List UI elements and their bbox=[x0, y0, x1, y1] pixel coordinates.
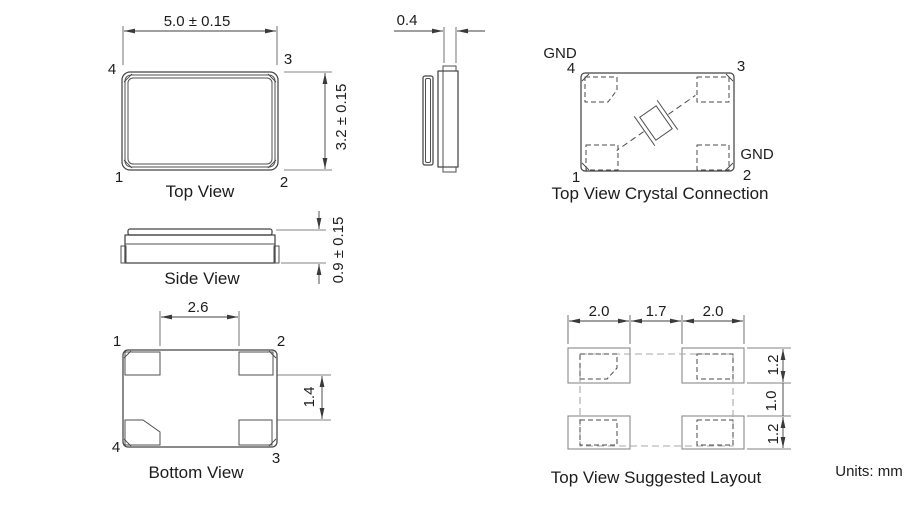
side-view-lid bbox=[128, 229, 272, 235]
suggested-layout-view: 2.0 1.7 2.0 1.2 1.0 1.2 Top View Suggest… bbox=[551, 303, 791, 487]
land-pad-top-left bbox=[568, 348, 630, 383]
bottom-view-pin1-label: 1 bbox=[113, 333, 121, 350]
crystal-plate bbox=[634, 116, 655, 145]
bottom-pad4-chamfered bbox=[125, 420, 160, 445]
side-view-caption: Side View bbox=[164, 269, 240, 288]
end-view-top-pad bbox=[443, 66, 456, 71]
layout-vertical-dimensions: 1.2 1.0 1.2 bbox=[747, 348, 791, 449]
crystal-connection-package-outline bbox=[581, 73, 734, 171]
datasheet-mechanical-drawing: 5.0 ± 0.15 3.2 ± 0.15 4 3 1 2 Top View bbox=[0, 0, 908, 528]
end-view-bottom-pad bbox=[443, 167, 456, 172]
top-view-width-dimension: 5.0 ± 0.15 bbox=[123, 13, 277, 65]
layout-horizontal-dimensions: 2.0 1.7 2.0 bbox=[568, 303, 744, 344]
layout-pad2-dashed bbox=[697, 420, 733, 445]
land-pad-bottom-right bbox=[682, 416, 744, 449]
crystal-pin4-label: 4 bbox=[567, 60, 575, 77]
layout-pad4-dashed bbox=[580, 354, 617, 379]
bottom-pad2 bbox=[239, 352, 273, 375]
bottom-view-caption: Bottom View bbox=[148, 463, 244, 482]
package-outline-dashed bbox=[580, 354, 733, 446]
top-view-pin2-label: 2 bbox=[280, 174, 288, 191]
end-view-width-dimension: 0.4 bbox=[394, 12, 485, 63]
layout-bottom-pad-height-label: 1.2 bbox=[765, 424, 782, 445]
side-view-thickness-label: 0.9 ± 0.15 bbox=[330, 217, 347, 284]
bottom-view-pin2-label: 2 bbox=[277, 333, 285, 350]
units-label: Units: mm bbox=[835, 463, 903, 480]
bottom-view-pin4-label: 4 bbox=[112, 439, 120, 456]
top-view-pin4-label: 4 bbox=[108, 61, 116, 78]
end-view-package bbox=[423, 66, 458, 172]
bottom-view-gap-dimension: 1.4 bbox=[277, 375, 331, 420]
crystal-pin3-label: 3 bbox=[737, 58, 745, 75]
layout-top-pad-height-label: 1.2 bbox=[765, 355, 782, 376]
bottom-view-span-label: 2.6 bbox=[188, 299, 209, 316]
pad3-dashed bbox=[697, 77, 729, 102]
crystal-lead-to-pin3 bbox=[668, 95, 695, 114]
end-view: 0.4 bbox=[394, 12, 485, 172]
side-view: 0.9 ± 0.15 Side View bbox=[121, 211, 347, 288]
layout-row-gap-label: 1.0 bbox=[763, 391, 780, 412]
end-view-width-label: 0.4 bbox=[397, 12, 418, 29]
bottom-view-pin3-label: 3 bbox=[272, 450, 280, 467]
gnd-label-pin2: GND bbox=[740, 146, 774, 163]
pad4-dashed bbox=[585, 77, 617, 102]
bottom-view-package-outline bbox=[123, 350, 277, 447]
bottom-pad3 bbox=[239, 420, 272, 445]
land-pad-bottom-left bbox=[568, 416, 630, 449]
pad2-dashed bbox=[697, 145, 729, 170]
top-view: 5.0 ± 0.15 3.2 ± 0.15 4 3 1 2 Top View bbox=[108, 13, 350, 201]
layout-pad1-dashed bbox=[580, 420, 617, 445]
crystal-plate bbox=[657, 100, 678, 129]
side-view-package bbox=[121, 229, 279, 263]
crystal-symbol bbox=[606, 81, 705, 166]
top-view-pin3-label: 3 bbox=[284, 51, 292, 68]
bottom-view-gap-label: 1.4 bbox=[301, 387, 318, 408]
drawing-canvas: 5.0 ± 0.15 3.2 ± 0.15 4 3 1 2 Top View bbox=[0, 0, 908, 528]
layout-pad-gap-label: 1.7 bbox=[646, 303, 667, 320]
layout-left-pad-width-label: 2.0 bbox=[589, 303, 610, 320]
top-view-height-label: 3.2 ± 0.15 bbox=[333, 84, 350, 151]
crystal-connection-view: GND 4 3 1 2 GND Top View Crystal Connect… bbox=[543, 45, 774, 203]
bottom-view: 2.6 1.4 1 2 4 3 Bottom View bbox=[112, 299, 331, 482]
crystal-lead-to-pin1 bbox=[617, 132, 644, 151]
end-view-lid bbox=[423, 76, 433, 165]
suggested-layout-caption: Top View Suggested Layout bbox=[551, 468, 762, 487]
layout-right-pad-width-label: 2.0 bbox=[703, 303, 724, 320]
crystal-connection-caption: Top View Crystal Connection bbox=[551, 184, 768, 203]
bottom-view-span-dimension: 2.6 bbox=[160, 299, 239, 346]
top-view-package-outline bbox=[122, 72, 278, 170]
crystal-pin2-label: 2 bbox=[743, 167, 751, 184]
layout-pad3-dashed bbox=[697, 354, 733, 379]
land-pad-top-right bbox=[682, 348, 744, 383]
top-view-caption: Top View bbox=[166, 182, 235, 201]
top-view-pin1-label: 1 bbox=[115, 169, 123, 186]
bottom-pad1 bbox=[125, 352, 160, 375]
pad1-dashed bbox=[586, 145, 618, 170]
side-view-thickness-dimension: 0.9 ± 0.15 bbox=[276, 211, 347, 284]
top-view-width-label: 5.0 ± 0.15 bbox=[164, 13, 231, 30]
top-view-height-dimension: 3.2 ± 0.15 bbox=[284, 72, 350, 170]
